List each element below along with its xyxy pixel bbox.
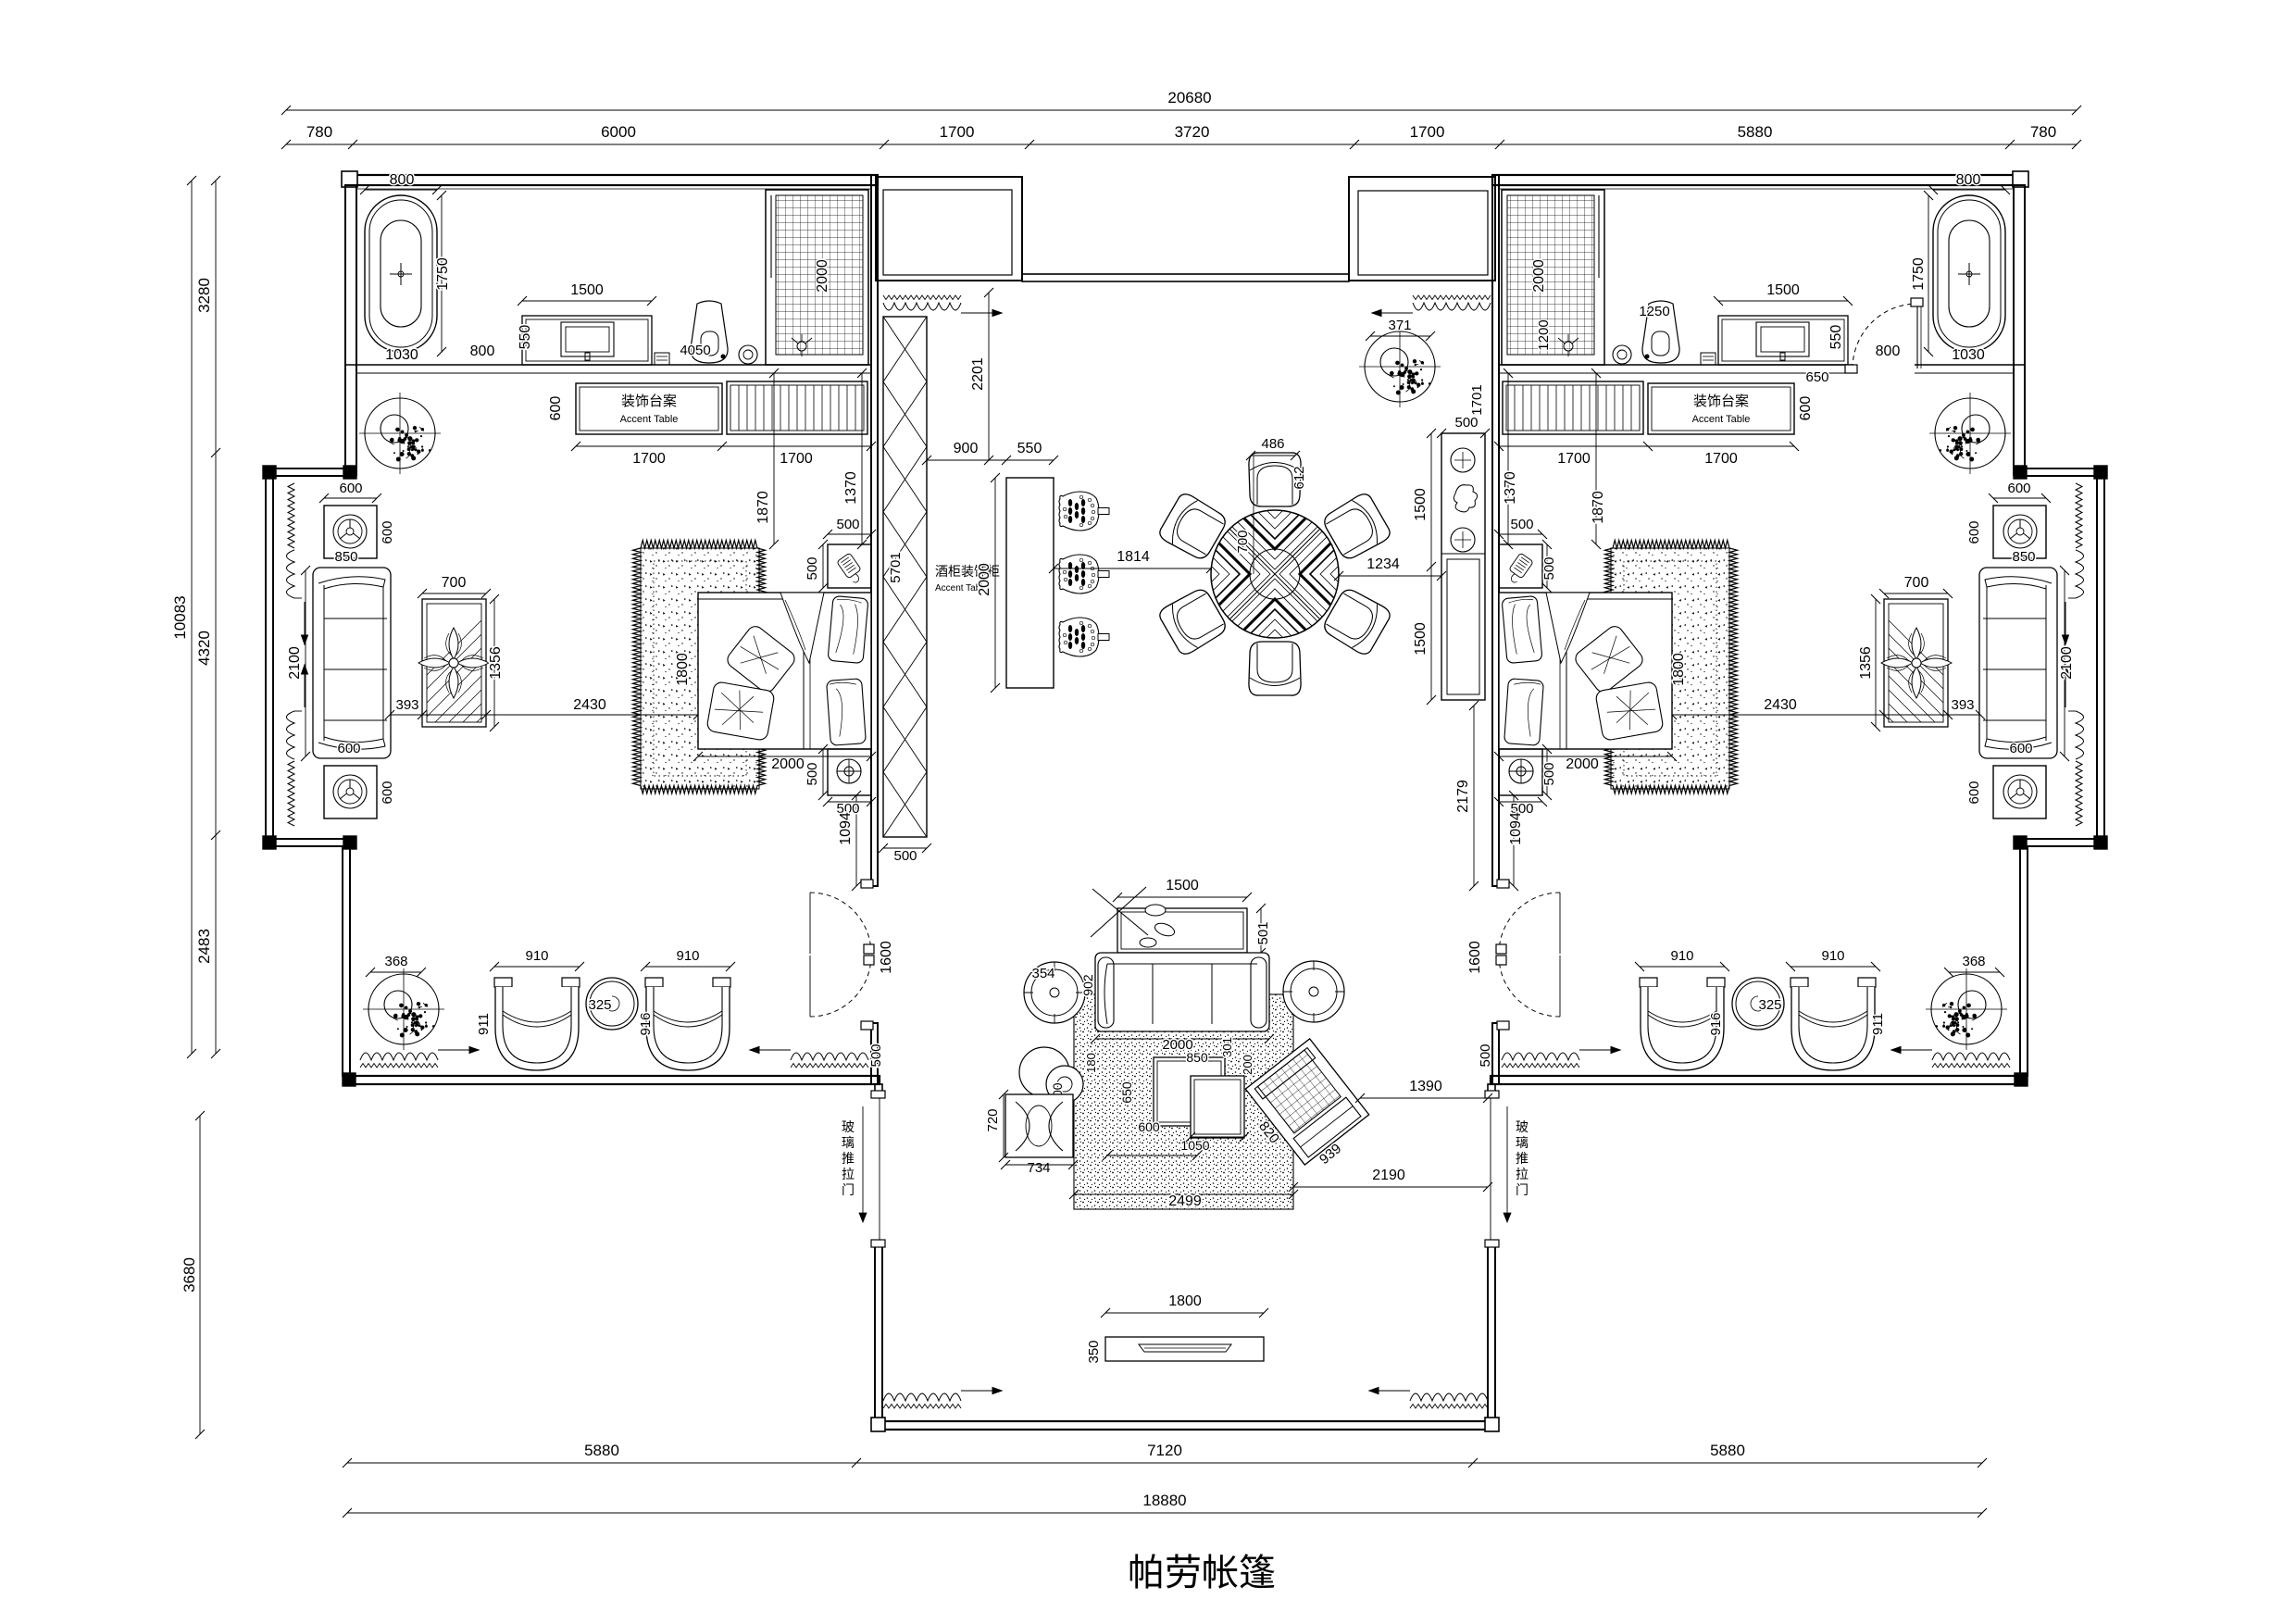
svg-text:1094: 1094 <box>838 812 854 845</box>
svg-text:200: 200 <box>1241 1055 1254 1075</box>
svg-text:600: 600 <box>1138 1119 1160 1134</box>
svg-text:910: 910 <box>525 948 548 964</box>
svg-text:1370: 1370 <box>843 471 859 505</box>
svg-text:1750: 1750 <box>435 257 451 291</box>
svg-text:装饰台案: 装饰台案 <box>621 393 677 409</box>
svg-text:916: 916 <box>1708 1012 1724 1035</box>
svg-text:1050: 1050 <box>1180 1138 1209 1153</box>
svg-text:500: 500 <box>1541 762 1557 785</box>
svg-text:368: 368 <box>384 954 407 969</box>
svg-text:325: 325 <box>588 997 611 1013</box>
svg-text:800: 800 <box>1956 172 1981 188</box>
svg-text:4320: 4320 <box>195 631 213 666</box>
svg-text:600: 600 <box>1966 781 1982 804</box>
svg-text:600: 600 <box>380 781 395 804</box>
svg-text:1700: 1700 <box>940 123 975 141</box>
svg-text:2000: 2000 <box>815 259 830 293</box>
svg-text:2100: 2100 <box>2059 646 2075 680</box>
svg-text:璃: 璃 <box>1516 1135 1529 1150</box>
svg-text:1700: 1700 <box>1704 451 1738 467</box>
svg-text:20680: 20680 <box>1167 89 1211 106</box>
svg-text:500: 500 <box>1541 556 1557 580</box>
svg-text:850: 850 <box>2012 549 2035 565</box>
svg-text:354: 354 <box>1031 966 1054 981</box>
svg-text:700: 700 <box>442 575 467 591</box>
svg-text:玻: 玻 <box>1516 1119 1529 1134</box>
svg-text:3280: 3280 <box>195 278 213 313</box>
svg-text:1800: 1800 <box>1168 1293 1202 1309</box>
svg-text:Accent Table: Accent Table <box>1692 414 1751 425</box>
svg-text:2483: 2483 <box>195 929 213 964</box>
svg-text:900: 900 <box>954 441 979 456</box>
svg-text:911: 911 <box>476 1013 492 1035</box>
svg-text:500: 500 <box>1454 415 1478 431</box>
svg-text:600: 600 <box>2009 741 2032 756</box>
svg-text:371: 371 <box>1388 318 1411 333</box>
svg-text:1700: 1700 <box>780 451 813 467</box>
svg-text:1356: 1356 <box>488 646 504 680</box>
svg-text:5880: 5880 <box>1710 1442 1745 1459</box>
svg-text:600: 600 <box>2007 481 2030 496</box>
svg-text:500: 500 <box>805 762 820 785</box>
svg-text:1356: 1356 <box>1858 646 1874 680</box>
svg-text:2100: 2100 <box>287 646 303 680</box>
svg-text:拉: 拉 <box>842 1167 855 1181</box>
svg-text:1701: 1701 <box>1469 384 1485 415</box>
svg-text:5880: 5880 <box>584 1442 619 1459</box>
svg-text:门: 门 <box>842 1182 855 1197</box>
svg-text:2499: 2499 <box>1168 1193 1202 1209</box>
svg-text:910: 910 <box>1821 948 1844 964</box>
svg-text:3680: 3680 <box>181 1257 198 1293</box>
svg-text:902: 902 <box>1080 974 1095 996</box>
svg-text:1600: 1600 <box>879 941 894 974</box>
svg-text:1250: 1250 <box>1639 304 1669 319</box>
svg-text:1700: 1700 <box>1557 451 1591 467</box>
svg-text:2000: 2000 <box>977 563 992 596</box>
svg-text:推: 推 <box>842 1151 855 1166</box>
svg-text:393: 393 <box>1951 697 1974 713</box>
svg-text:1500: 1500 <box>1413 622 1429 656</box>
svg-text:7120: 7120 <box>1147 1442 1182 1459</box>
svg-text:500: 500 <box>893 848 917 864</box>
svg-text:393: 393 <box>395 697 418 713</box>
svg-text:2430: 2430 <box>1764 697 1797 713</box>
svg-text:1800: 1800 <box>1671 653 1687 686</box>
svg-text:780: 780 <box>306 123 332 141</box>
svg-text:1700: 1700 <box>1410 123 1445 141</box>
svg-text:2190: 2190 <box>1372 1168 1405 1183</box>
svg-text:500: 500 <box>1510 517 1533 532</box>
svg-text:1500: 1500 <box>1166 878 1199 893</box>
svg-text:帕劳帐篷: 帕劳帐篷 <box>1128 1552 1276 1593</box>
svg-text:500: 500 <box>836 517 859 532</box>
svg-text:500: 500 <box>1478 1043 1493 1067</box>
svg-text:780: 780 <box>2030 123 2056 141</box>
svg-text:850: 850 <box>334 549 357 565</box>
svg-text:650: 650 <box>1119 1081 1134 1104</box>
svg-text:1800: 1800 <box>675 653 691 686</box>
svg-text:368: 368 <box>1962 954 1985 969</box>
svg-text:650: 650 <box>1805 369 1828 385</box>
svg-text:301: 301 <box>1220 1037 1234 1057</box>
svg-text:550: 550 <box>518 325 533 350</box>
svg-text:910: 910 <box>1670 948 1693 964</box>
svg-text:璃: 璃 <box>842 1135 855 1150</box>
svg-text:2000: 2000 <box>771 756 805 772</box>
svg-text:18880: 18880 <box>1142 1492 1186 1509</box>
svg-text:5880: 5880 <box>1738 123 1773 141</box>
svg-text:600: 600 <box>339 481 362 496</box>
svg-text:600: 600 <box>548 396 564 421</box>
svg-text:6000: 6000 <box>601 123 636 141</box>
svg-text:4050: 4050 <box>680 343 710 358</box>
svg-text:1870: 1870 <box>1591 491 1606 524</box>
svg-text:850: 850 <box>1186 1050 1208 1065</box>
svg-text:600: 600 <box>380 520 395 543</box>
svg-text:800: 800 <box>1876 344 1901 359</box>
svg-text:550: 550 <box>1017 441 1042 456</box>
svg-text:720: 720 <box>985 1108 1001 1131</box>
svg-text:501: 501 <box>1255 921 1271 944</box>
svg-text:350: 350 <box>1086 1340 1102 1363</box>
svg-text:916: 916 <box>638 1012 654 1035</box>
svg-text:600: 600 <box>1966 520 1982 543</box>
svg-text:500: 500 <box>868 1043 884 1067</box>
svg-text:1750: 1750 <box>1911 257 1927 291</box>
svg-text:910: 910 <box>676 948 699 964</box>
svg-text:2000: 2000 <box>1566 756 1599 772</box>
svg-text:1234: 1234 <box>1366 556 1400 572</box>
svg-text:5701: 5701 <box>888 552 904 582</box>
svg-text:1500: 1500 <box>1413 488 1429 521</box>
svg-text:1700: 1700 <box>632 451 666 467</box>
svg-text:600: 600 <box>1798 396 1814 421</box>
svg-text:550: 550 <box>1828 325 1844 350</box>
svg-text:600: 600 <box>337 741 360 756</box>
svg-text:800: 800 <box>470 344 495 359</box>
svg-text:拉: 拉 <box>1516 1167 1529 1181</box>
svg-text:10083: 10083 <box>171 595 189 639</box>
svg-text:1094: 1094 <box>1508 812 1524 845</box>
svg-text:800: 800 <box>390 172 415 188</box>
svg-text:1814: 1814 <box>1117 549 1150 565</box>
svg-text:1370: 1370 <box>1503 471 1518 505</box>
svg-text:玻: 玻 <box>842 1119 855 1134</box>
svg-text:1870: 1870 <box>755 491 771 524</box>
svg-text:1500: 1500 <box>570 282 604 298</box>
svg-text:1500: 1500 <box>1766 282 1800 298</box>
svg-text:Accent Table: Accent Table <box>620 414 679 425</box>
svg-text:2430: 2430 <box>573 697 606 713</box>
svg-text:2000: 2000 <box>1531 259 1547 293</box>
svg-text:门: 门 <box>1516 1182 1529 1197</box>
svg-text:700: 700 <box>1235 530 1251 553</box>
svg-text:911: 911 <box>1870 1013 1886 1035</box>
svg-text:装饰台案: 装饰台案 <box>1693 393 1749 409</box>
svg-text:180: 180 <box>1084 1053 1098 1073</box>
svg-text:1030: 1030 <box>385 347 418 363</box>
svg-text:734: 734 <box>1027 1160 1050 1176</box>
svg-text:3720: 3720 <box>1175 123 1210 141</box>
svg-text:1030: 1030 <box>1952 347 1985 363</box>
svg-text:1600: 1600 <box>1467 941 1483 974</box>
svg-text:612: 612 <box>1291 466 1307 489</box>
svg-text:1200: 1200 <box>1536 319 1552 350</box>
svg-text:325: 325 <box>1758 997 1781 1013</box>
svg-text:推: 推 <box>1516 1151 1529 1166</box>
svg-text:2201: 2201 <box>970 357 986 391</box>
svg-text:500: 500 <box>805 556 820 580</box>
svg-text:700: 700 <box>1904 575 1929 591</box>
svg-text:2179: 2179 <box>1455 780 1471 813</box>
svg-text:1390: 1390 <box>1409 1079 1442 1094</box>
svg-text:486: 486 <box>1261 436 1284 452</box>
